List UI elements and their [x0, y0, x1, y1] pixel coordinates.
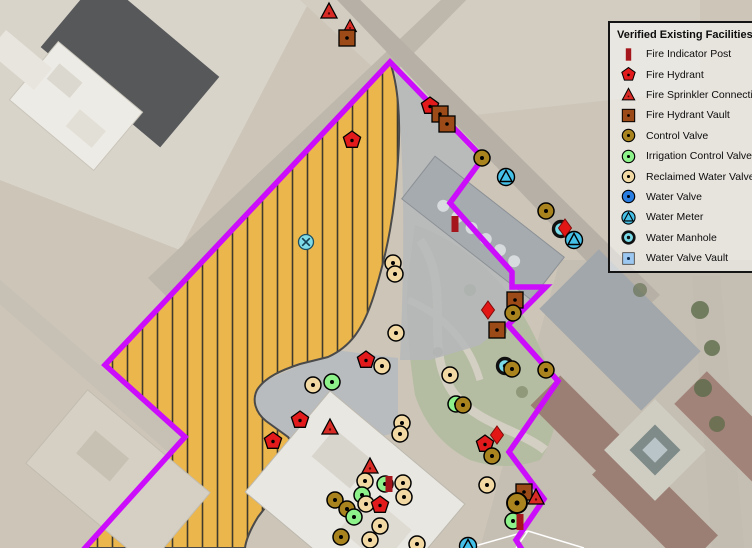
legend-item-label: Fire Sprinkler Connection [639, 89, 752, 101]
irrigation-control-valve-marker[interactable] [346, 509, 362, 525]
reclaimed-water-valve-marker[interactable] [442, 367, 458, 383]
reclaimed-water-valve-marker[interactable] [362, 532, 378, 548]
water-valve-icon [620, 188, 637, 205]
reclaimed-water-valve-marker[interactable] [387, 266, 403, 282]
water-meter-icon [620, 209, 637, 226]
legend-item-label: Fire Hydrant Vault [639, 109, 730, 121]
control-valve-marker[interactable] [333, 529, 349, 545]
control-valve-marker[interactable] [455, 397, 471, 413]
legend-item-label: Control Valve [639, 130, 708, 142]
control-valve-icon [620, 127, 637, 144]
water-meter-marker[interactable] [566, 232, 583, 249]
reclaimed-water-valve-marker[interactable] [392, 426, 408, 442]
legend-item-fire-hydrant-vault: Fire Hydrant Vault [617, 105, 752, 125]
legend-panel: Verified Existing Facilities Fire Indica… [608, 21, 752, 273]
fire-sprinkler-connection-icon [620, 86, 637, 103]
legend-item-fire-sprinkler-connection: Fire Sprinkler Connection [617, 85, 752, 105]
legend-items: Fire Indicator PostFire HydrantFire Spri… [617, 44, 752, 268]
reclaimed-water-valve-marker[interactable] [396, 489, 412, 505]
x-valve-marker[interactable] [299, 235, 314, 250]
legend-item-label: Irrigation Control Valve [639, 150, 752, 162]
legend-item-label: Water Manhole [639, 232, 717, 244]
control-valve-marker[interactable] [484, 448, 500, 464]
legend-item-water-valve: Water Valve [617, 187, 752, 207]
legend-title: Verified Existing Facilities [617, 29, 752, 41]
control-valve-marker[interactable] [538, 362, 554, 378]
reclaimed-water-valve-marker[interactable] [409, 536, 425, 548]
fire-hydrant-vault-marker[interactable] [489, 322, 505, 338]
reclaimed-water-valve-marker[interactable] [372, 518, 388, 534]
water-valve-vault-icon [620, 250, 637, 267]
water-meter-marker[interactable] [460, 538, 477, 548]
reclaimed-water-valve-marker[interactable] [479, 477, 495, 493]
legend-item-label: Water Valve Vault [639, 252, 728, 264]
legend-item-irrigation-control-valve: Irrigation Control Valve [617, 146, 752, 166]
reclaimed-water-valve-marker[interactable] [305, 377, 321, 393]
legend-item-water-manhole: Water Manhole [617, 228, 752, 248]
reclaimed-water-valve-marker[interactable] [374, 358, 390, 374]
fire-hydrant-vault-marker[interactable] [339, 30, 355, 46]
control-valve-marker[interactable] [505, 305, 521, 321]
fire-indicator-post-marker[interactable] [517, 514, 524, 530]
control-valve-marker[interactable] [538, 203, 554, 219]
reclaimed-water-valve-icon [620, 168, 637, 185]
map-viewport: Verified Existing Facilities Fire Indica… [0, 0, 752, 548]
legend-item-water-valve-vault: Water Valve Vault [617, 248, 752, 268]
legend-item-label: Water Meter [639, 211, 703, 223]
control-valve-marker[interactable] [507, 493, 527, 513]
control-valve-marker[interactable] [474, 150, 490, 166]
legend-item-fire-hydrant: Fire Hydrant [617, 64, 752, 84]
water-meter-marker[interactable] [498, 169, 515, 186]
fire-indicator-post-icon [620, 46, 637, 63]
legend-item-label: Fire Hydrant [639, 69, 704, 81]
water-manhole-icon [620, 229, 637, 246]
legend-item-label: Water Valve [639, 191, 702, 203]
reclaimed-water-valve-marker[interactable] [357, 473, 373, 489]
reclaimed-water-valve-marker[interactable] [388, 325, 404, 341]
irrigation-control-valve-marker[interactable] [324, 374, 340, 390]
fire-hydrant-vault-marker[interactable] [439, 116, 455, 132]
legend-item-reclaimed-water-valve: Reclaimed Water Valve [617, 166, 752, 186]
legend-item-fire-indicator-post: Fire Indicator Post [617, 44, 752, 64]
legend-item-label: Reclaimed Water Valve [639, 171, 752, 183]
fire-indicator-post-marker[interactable] [452, 216, 459, 232]
control-valve-marker[interactable] [504, 361, 520, 377]
irrigation-control-valve-icon [620, 148, 637, 165]
fire-hydrant-icon [620, 66, 637, 83]
fire-indicator-post-marker[interactable] [386, 476, 393, 492]
legend-item-water-meter: Water Meter [617, 207, 752, 227]
fire-hydrant-vault-icon [620, 107, 637, 124]
legend-item-label: Fire Indicator Post [639, 48, 731, 60]
legend-item-control-valve: Control Valve [617, 126, 752, 146]
